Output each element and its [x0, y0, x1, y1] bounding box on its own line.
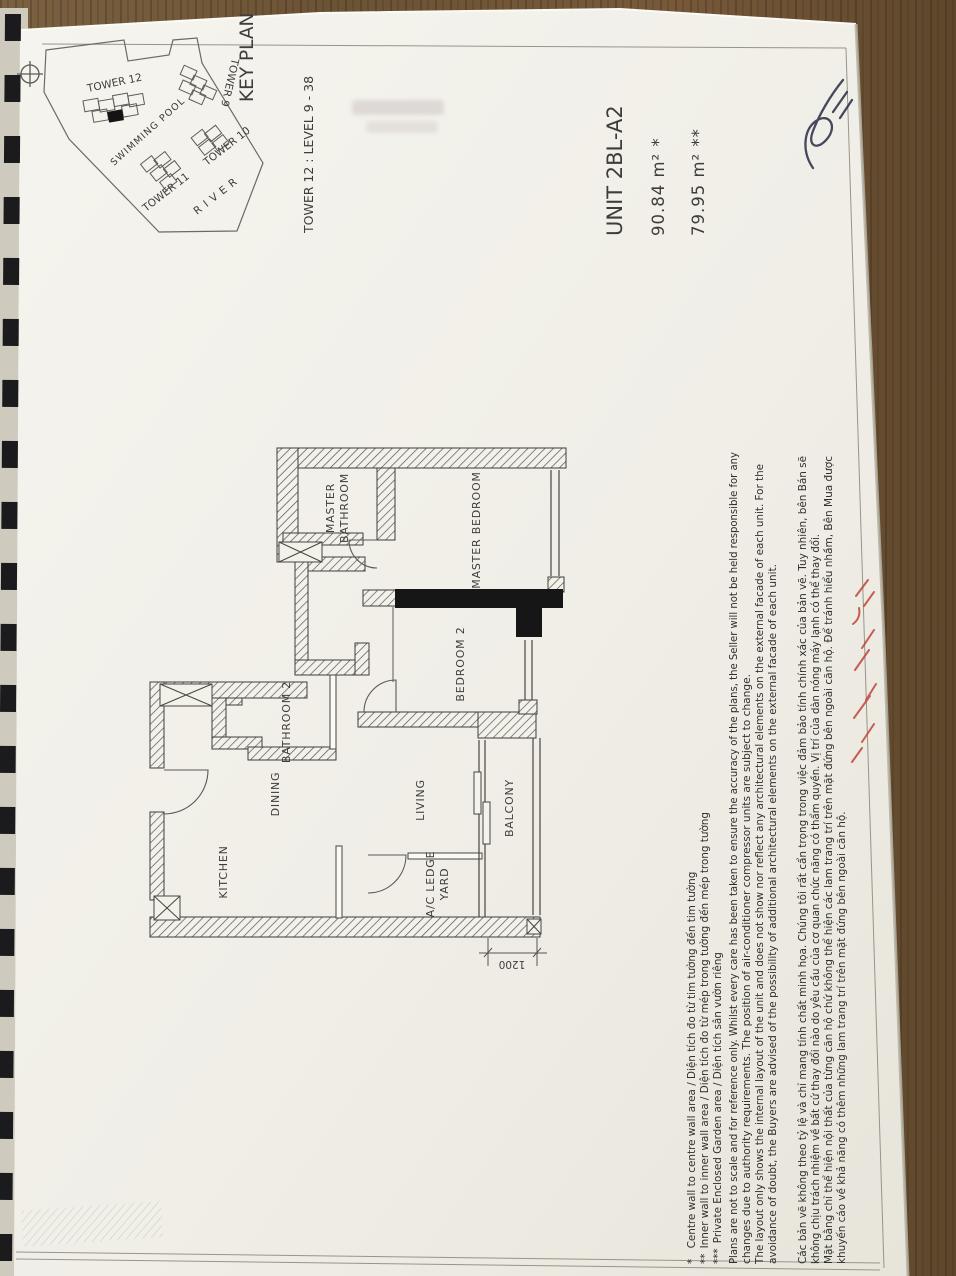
master-bathroom-label-line1: MASTER	[324, 483, 337, 533]
area-inner-label: 79.95 m² **	[689, 128, 708, 236]
footnote-en-1: * Centre wall to centre wall area / Diện…	[686, 872, 698, 1264]
footnote-vn-4: khuyến cáo về khả năng có thêm những lam…	[836, 811, 848, 1264]
balcony-label: BALCONY	[503, 779, 516, 837]
ac-ledge-label-line1: A/C LEDGE	[424, 851, 437, 918]
footnote-en-6: The layout only shows the internal layou…	[754, 464, 766, 1265]
dimension-1200-text: 1200	[499, 958, 526, 970]
footnote-en-4: Plans are not to scale and for reference…	[728, 452, 740, 1264]
master-bedroom-label: MASTER BEDROOM	[470, 471, 483, 588]
key-plan-title: KEY PLAN	[237, 13, 258, 102]
footnote-en-7: avoidance of doubt, the Buyers are advis…	[767, 564, 779, 1264]
ac-ledge-label-line2: YARD	[438, 868, 451, 902]
footnote-vn-3: Mặt bằng chỉ thể hiện nội thất của từng …	[822, 456, 835, 1264]
unit-label: UNIT 2BL-A2	[603, 105, 627, 236]
floorplan-photo: TOWER 12 TOWER 9 TOWER 10 TOWER 11 SWIMM…	[0, 0, 956, 1276]
dining-label: DINING	[269, 772, 282, 817]
bathroom2-label: BATHROOM 2	[280, 681, 293, 763]
area-outer-label: 90.84 m² *	[649, 137, 668, 236]
bedroom2-label: BEDROOM 2	[454, 626, 467, 701]
footnote-en-5: changes due to authority requirements. T…	[741, 674, 753, 1264]
page-drawing: TOWER 12 TOWER 9 TOWER 10 TOWER 11 SWIMM…	[0, 0, 956, 1276]
living-label: LIVING	[414, 779, 427, 821]
master-bathroom-label-line2: BATHROOM	[338, 473, 351, 543]
kitchen-label: KITCHEN	[217, 845, 230, 898]
footnote-en-2: ** Inner wall to inner wall area / Diện …	[699, 812, 711, 1264]
tower-level-label: TOWER 12 : LEVEL 9 - 38	[301, 76, 316, 234]
footnote-vn-1: Các bản vẽ không theo tỷ lệ và chỉ mang …	[796, 456, 809, 1264]
footnote-en-3: *** Private Enclosed Garden area / Diện …	[712, 952, 724, 1264]
footnote-vn-2: không chịu trách nhiệm về bất cứ thay đổ…	[809, 534, 822, 1264]
